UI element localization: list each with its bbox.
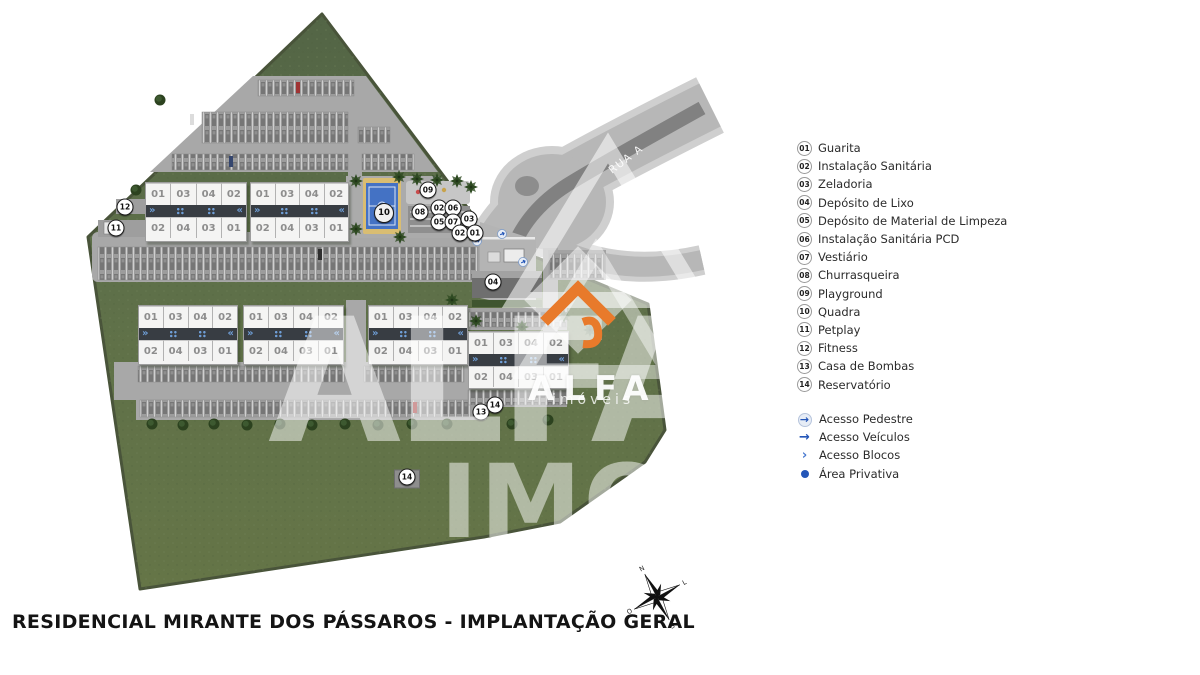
unit-number: 03: [164, 306, 189, 328]
building-block-4: 01030402»«02040301: [243, 305, 344, 365]
plan-badge-08: 08: [412, 204, 429, 221]
legend-item-04: 04Depósito de Lixo: [797, 194, 1007, 212]
legend-item-label: Casa de Bombas: [818, 359, 914, 373]
legend-panel: 01Guarita02Instalação Sanitária03Zelador…: [797, 139, 1007, 394]
legend-item-label: Fitness: [818, 341, 858, 355]
block-access-strip: »«: [251, 205, 348, 217]
unit-number: 04: [164, 340, 189, 361]
legend-item-03: 03Zeladoria: [797, 175, 1007, 193]
private-area-dots-icon: [280, 207, 289, 215]
legend-item-label: Depósito de Lixo: [818, 196, 914, 210]
block-entry-chevron-right-icon: «: [334, 329, 340, 339]
legend-item-label: Quadra: [818, 305, 860, 319]
access-legend-item: Área Privativa: [797, 465, 913, 483]
unit-number: 01: [213, 340, 237, 361]
private-area-dots-icon: [169, 330, 178, 338]
block-entry-chevron-right-icon: «: [458, 329, 464, 339]
legend-number-chip: 09: [797, 286, 812, 301]
unit-row: 01030402: [251, 183, 348, 205]
block-entry-chevron-left-icon: »: [254, 206, 260, 216]
private-area-dots-icon: [499, 356, 508, 364]
unit-number: 03: [494, 332, 519, 354]
legend-number-chip: 12: [797, 341, 812, 356]
building-block-2: 01030402»«02040301: [250, 182, 349, 242]
legend-item-01: 01Guarita: [797, 139, 1007, 157]
legend-item-label: Depósito de Material de Limpeza: [818, 214, 1007, 228]
legend-item-label: Instalação Sanitária PCD: [818, 232, 959, 246]
access-legend-item: →Acesso Veículos: [797, 428, 913, 446]
legend-item-06: 06Instalação Sanitária PCD: [797, 230, 1007, 248]
compass-north-label: N: [638, 564, 646, 573]
legend-number-chip: 03: [797, 177, 812, 192]
block-entry-chevron-right-icon: «: [237, 206, 243, 216]
unit-number: 02: [319, 306, 343, 328]
legend-item-13: 13Casa de Bombas: [797, 357, 1007, 375]
site-plan-page: RUA A: [0, 0, 1200, 675]
compass-east-label: L: [681, 578, 688, 587]
unit-number: 01: [469, 332, 494, 354]
access-item-label: Acesso Blocos: [819, 448, 900, 462]
legend-item-07: 07Vestiário: [797, 248, 1007, 266]
unit-number: 01: [544, 366, 568, 387]
legend-number-chip: 01: [797, 141, 812, 156]
legend-number-chip: 10: [797, 304, 812, 319]
legend-item-label: Instalação Sanitária: [818, 159, 932, 173]
unit-number: 02: [251, 217, 276, 238]
legend-number-chip: 07: [797, 250, 812, 265]
unit-number: 02: [369, 340, 394, 361]
block-access-strip: »«: [244, 328, 343, 340]
unit-number: 03: [189, 340, 214, 361]
unit-number: 02: [213, 306, 237, 328]
unit-number: 04: [197, 183, 222, 205]
access-legend-item: ›Acesso Blocos: [797, 446, 913, 464]
unit-number: 04: [394, 340, 419, 361]
unit-number: 04: [269, 340, 294, 361]
unit-number: 03: [269, 306, 294, 328]
legend-item-label: Reservatório: [818, 378, 891, 392]
private-area-dots-icon: [207, 207, 216, 215]
building-block-6: 01030402»«02040301: [468, 331, 569, 389]
legend-number-chip: 02: [797, 159, 812, 174]
unit-number: 02: [469, 366, 494, 387]
unit-row: 01030402: [244, 306, 343, 328]
block-entry-chevron-left-icon: »: [149, 206, 155, 216]
unit-row: 01030402: [146, 183, 246, 205]
legend-item-label: Zeladoria: [818, 177, 873, 191]
plan-badge-11: 11: [108, 220, 125, 237]
plan-badge-09: 09: [420, 182, 437, 199]
unit-row: 02040301: [244, 340, 343, 361]
unit-row: 02040301: [139, 340, 237, 361]
legend-item-label: Playground: [818, 287, 883, 301]
unit-number: 02: [222, 183, 246, 205]
unit-number: 01: [244, 306, 269, 328]
unit-row: 01030402: [139, 306, 237, 328]
unit-number: 01: [443, 340, 467, 361]
legend-item-label: Petplay: [818, 323, 860, 337]
private-area-dots-icon: [274, 330, 283, 338]
unit-number: 02: [146, 217, 171, 238]
unit-number: 02: [325, 183, 349, 205]
legend-item-label: Churrasqueira: [818, 268, 900, 282]
unit-number: 04: [519, 332, 544, 354]
legend-item-14: 14Reservatório: [797, 375, 1007, 393]
access-legend-panel: →Acesso Pedestre→Acesso Veículos›Acesso …: [797, 410, 913, 483]
page-title: RESIDENCIAL MIRANTE DOS PÁSSAROS - IMPLA…: [12, 611, 695, 633]
legend-number-chip: 13: [797, 359, 812, 374]
access-item-label: Área Privativa: [819, 467, 899, 481]
access-item-label: Acesso Pedestre: [819, 412, 913, 426]
unit-number: 04: [294, 306, 319, 328]
unit-number: 04: [494, 366, 519, 387]
block-entry-chevron-right-icon: «: [559, 355, 565, 365]
plan-badge-14: 14: [487, 397, 504, 414]
unit-number: 01: [222, 217, 246, 238]
legend-number-chip: 08: [797, 268, 812, 283]
unit-number: 02: [544, 332, 568, 354]
private-area-dots-icon: [176, 207, 185, 215]
legend-item-12: 12Fitness: [797, 339, 1007, 357]
plan-badge-01: 01: [467, 225, 484, 242]
legend-number-chip: 14: [797, 377, 812, 392]
unit-number: 02: [443, 306, 467, 328]
legend-item-label: Guarita: [818, 141, 861, 155]
legend-item-10: 10Quadra: [797, 303, 1007, 321]
building-block-1: 01030402»«02040301: [145, 182, 247, 242]
unit-number: 04: [171, 217, 196, 238]
block-entry-chevron-left-icon: »: [372, 329, 378, 339]
block-access-strip: »«: [469, 354, 568, 366]
unit-number: 04: [300, 183, 325, 205]
unit-number: 03: [294, 340, 319, 361]
building-block-5: 01030402»«02040301: [368, 305, 468, 365]
unit-number: 03: [519, 366, 544, 387]
legend-number-chip: 05: [797, 213, 812, 228]
legend-number-chip: 11: [797, 322, 812, 337]
block-entry-chevron-left-icon: »: [472, 355, 478, 365]
unit-number: 01: [325, 217, 349, 238]
plan-badge-12: 12: [117, 199, 134, 216]
legend-number-chip: 04: [797, 195, 812, 210]
unit-number: 02: [139, 340, 164, 361]
legend-item-08: 08Churrasqueira: [797, 266, 1007, 284]
unit-number: 03: [171, 183, 196, 205]
access-item-label: Acesso Veículos: [819, 430, 910, 444]
block-entry-chevron-right-icon: «: [228, 329, 234, 339]
private-area-dots-icon: [428, 330, 437, 338]
block-entry-chevron-left-icon: »: [142, 329, 148, 339]
unit-row: 01030402: [369, 306, 467, 328]
unit-number: 02: [244, 340, 269, 361]
unit-row: 02040301: [469, 366, 568, 387]
block-access-strip: »«: [146, 205, 246, 217]
building-block-3: 01030402»«02040301: [138, 305, 238, 365]
unit-number: 01: [146, 183, 171, 205]
unit-number: 03: [300, 217, 325, 238]
legend-item-label: Vestiário: [818, 250, 868, 264]
unit-row: 01030402: [469, 332, 568, 354]
unit-number: 01: [369, 306, 394, 328]
legend-item-02: 02Instalação Sanitária: [797, 157, 1007, 175]
block-access-strip: »«: [369, 328, 467, 340]
unit-number: 03: [419, 340, 444, 361]
block-entry-chevron-right-icon: «: [339, 206, 345, 216]
pedestrian-access-icon: →: [797, 412, 812, 427]
unit-row: 02040301: [369, 340, 467, 361]
block-entry-chevron-left-icon: »: [247, 329, 253, 339]
legend-item-11: 11Petplay: [797, 321, 1007, 339]
unit-number: 04: [419, 306, 444, 328]
legend-number-chip: 06: [797, 232, 812, 247]
unit-number: 01: [319, 340, 343, 361]
private-area-dots-icon: [304, 330, 313, 338]
vehicle-access-icon: →: [797, 430, 812, 445]
unit-number: 03: [276, 183, 301, 205]
unit-number: 04: [189, 306, 214, 328]
private-area-icon: [797, 466, 812, 481]
unit-number: 01: [251, 183, 276, 205]
legend-item-05: 05Depósito de Material de Limpeza: [797, 212, 1007, 230]
legend-item-09: 09Playground: [797, 285, 1007, 303]
private-area-dots-icon: [198, 330, 207, 338]
private-area-dots-icon: [399, 330, 408, 338]
private-area-dots-icon: [310, 207, 319, 215]
plan-badge-10: 10: [374, 203, 394, 223]
access-legend-item: →Acesso Pedestre: [797, 410, 913, 428]
unit-number: 04: [276, 217, 301, 238]
unit-row: 02040301: [146, 217, 246, 238]
unit-number: 03: [394, 306, 419, 328]
plan-badge-14: 14: [399, 469, 416, 486]
unit-number: 03: [197, 217, 222, 238]
block-access-icon: ›: [797, 448, 812, 463]
unit-number: 01: [139, 306, 164, 328]
block-access-strip: »«: [139, 328, 237, 340]
plan-badge-04: 04: [485, 274, 502, 291]
unit-row: 02040301: [251, 217, 348, 238]
private-area-dots-icon: [529, 356, 538, 364]
